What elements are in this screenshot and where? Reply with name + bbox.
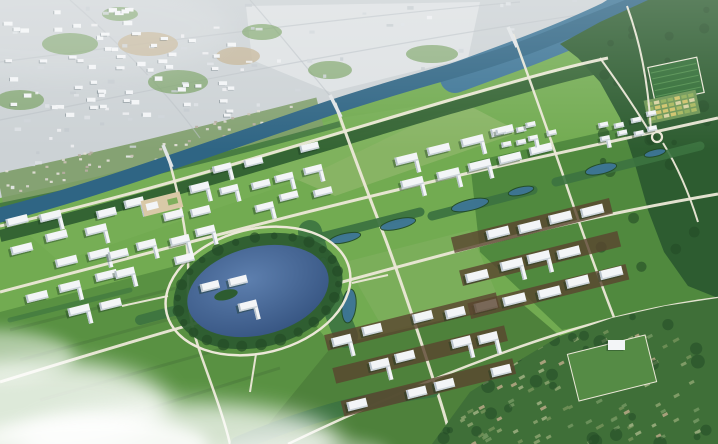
clearing-building xyxy=(608,340,625,350)
scene-svg xyxy=(0,0,718,444)
aerial-masterplan-render xyxy=(0,0,718,444)
